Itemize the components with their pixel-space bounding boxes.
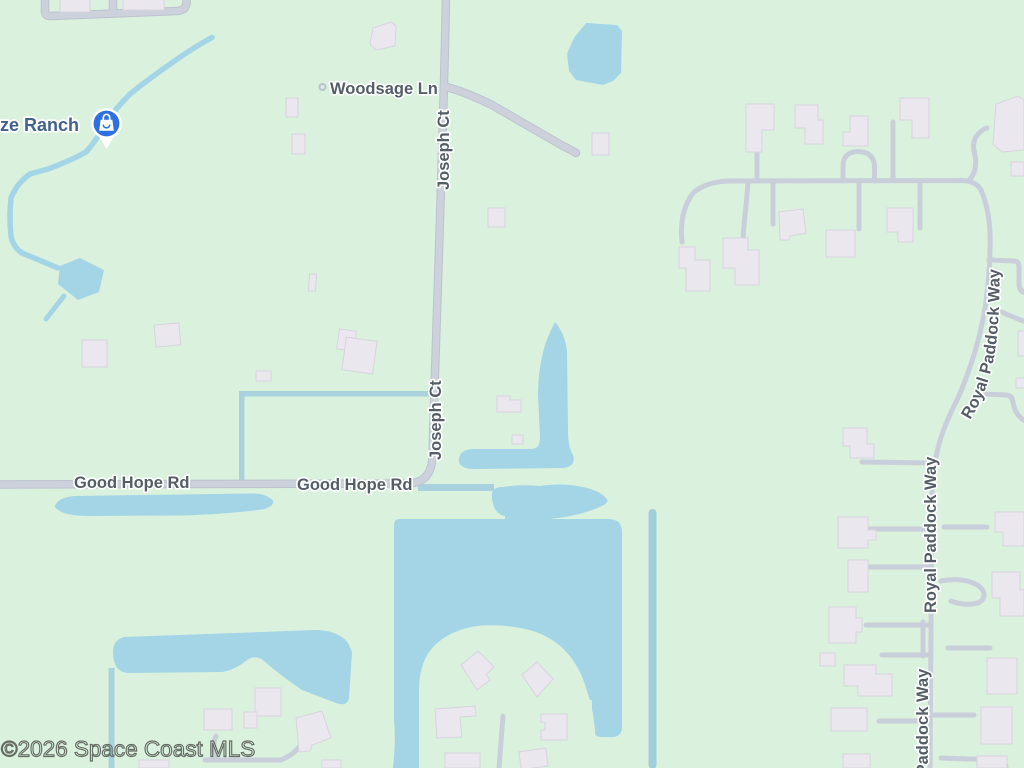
svg-text:Good Hope Rd: Good Hope Rd	[74, 474, 189, 492]
svg-text:Joseph Ct: Joseph Ct	[435, 110, 453, 190]
svg-text:Woodsage Ln: Woodsage Ln	[330, 80, 438, 98]
svg-text:eze Ranch: eze Ranch	[0, 115, 79, 135]
svg-text:©2026 Space Coast MLS: ©2026 Space Coast MLS	[1, 737, 255, 762]
svg-text:Royal Paddock Way: Royal Paddock Way	[922, 456, 940, 613]
svg-text:Royal Paddock Way: Royal Paddock Way	[914, 668, 932, 768]
svg-text:Good Hope Rd: Good Hope Rd	[297, 476, 412, 494]
svg-text:Joseph Ct: Joseph Ct	[427, 380, 445, 460]
